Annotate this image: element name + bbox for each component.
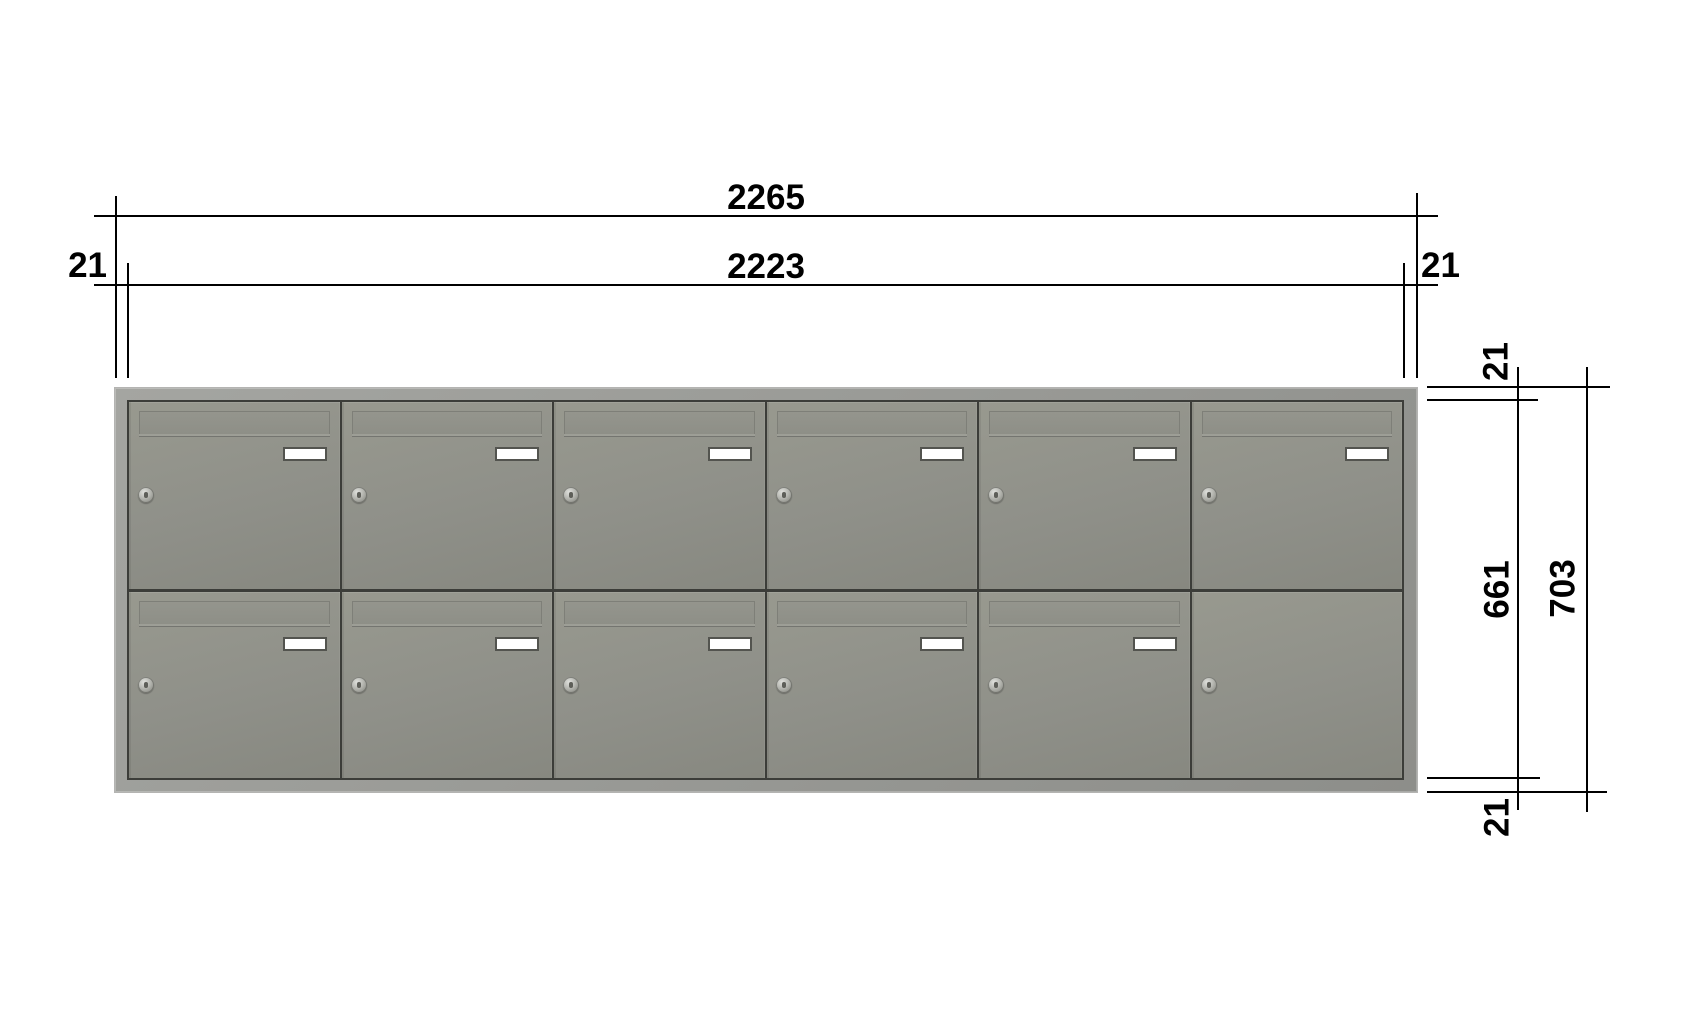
mailbox-door-3 bbox=[554, 402, 765, 589]
mailbox-door-11 bbox=[979, 592, 1190, 779]
keyhole-dot bbox=[1207, 682, 1211, 688]
letter-flap bbox=[777, 411, 968, 434]
letter-flap bbox=[1202, 411, 1393, 434]
dim-label-inner-width: 2223 bbox=[646, 249, 886, 284]
mailbox-door-8 bbox=[342, 592, 553, 779]
letter-flap bbox=[989, 601, 1180, 624]
name-plate bbox=[283, 637, 327, 651]
name-plate bbox=[283, 447, 327, 461]
lock-cylinder bbox=[988, 677, 1004, 693]
keyhole-dot bbox=[994, 682, 998, 688]
letterbox-cabinet-frame bbox=[115, 388, 1417, 792]
letter-flap bbox=[352, 411, 543, 434]
dim-label-left-frame: 21 bbox=[27, 248, 107, 283]
dim-label-right-frame: 21 bbox=[1421, 248, 1501, 283]
lock-cylinder bbox=[1201, 487, 1217, 503]
name-plate bbox=[708, 637, 752, 651]
lock-cylinder bbox=[351, 677, 367, 693]
mailbox-door-12 bbox=[1192, 592, 1403, 779]
mailbox-door-7 bbox=[129, 592, 340, 779]
dim-label-inner-height: 661 bbox=[1480, 530, 1515, 650]
letter-flap bbox=[564, 601, 755, 624]
extension-line-right-outer bbox=[1416, 193, 1418, 378]
letter-flap bbox=[352, 601, 543, 624]
mailbox-door-10 bbox=[767, 592, 978, 779]
keyhole-dot bbox=[144, 492, 148, 498]
keyhole-dot bbox=[1207, 492, 1211, 498]
dim-label-overall-height: 703 bbox=[1546, 529, 1581, 649]
dim-label-overall-width: 2265 bbox=[646, 180, 886, 215]
letter-flap bbox=[139, 601, 330, 624]
mailbox-door-2 bbox=[342, 402, 553, 589]
name-plate bbox=[920, 637, 964, 651]
dimension-drawing-canvas: 2265 2223 21 21 21 661 703 21 bbox=[0, 0, 1694, 1017]
dim-label-top-frame: 21 bbox=[1479, 302, 1514, 422]
mailbox-door-9 bbox=[554, 592, 765, 779]
keyhole-dot bbox=[994, 492, 998, 498]
mailbox-door-5 bbox=[979, 402, 1190, 589]
mailbox-door-4 bbox=[767, 402, 978, 589]
extension-line-top-outer bbox=[1427, 386, 1610, 388]
extension-line-left-inner bbox=[127, 263, 129, 378]
lock-cylinder bbox=[1201, 677, 1217, 693]
keyhole-dot bbox=[357, 682, 361, 688]
dim-label-bottom-frame: 21 bbox=[1480, 758, 1515, 878]
lock-cylinder bbox=[988, 487, 1004, 503]
extension-line-right-inner bbox=[1403, 263, 1405, 378]
letter-flap bbox=[989, 411, 1180, 434]
letter-flap bbox=[139, 411, 330, 434]
lock-cylinder bbox=[563, 487, 579, 503]
keyhole-dot bbox=[144, 682, 148, 688]
name-plate bbox=[1133, 447, 1177, 461]
keyhole-dot bbox=[782, 492, 786, 498]
lock-cylinder bbox=[351, 487, 367, 503]
name-plate bbox=[495, 447, 539, 461]
keyhole-dot bbox=[782, 682, 786, 688]
lock-cylinder bbox=[563, 677, 579, 693]
dim-line-overall-height bbox=[1586, 367, 1588, 812]
keyhole-dot bbox=[569, 492, 573, 498]
letter-flap bbox=[777, 601, 968, 624]
name-plate bbox=[1133, 637, 1177, 651]
keyhole-dot bbox=[569, 682, 573, 688]
name-plate bbox=[495, 637, 539, 651]
lock-cylinder bbox=[776, 487, 792, 503]
door-grid bbox=[127, 400, 1404, 780]
lock-cylinder bbox=[138, 487, 154, 503]
name-plate bbox=[920, 447, 964, 461]
keyhole-dot bbox=[357, 492, 361, 498]
letter-flap bbox=[564, 411, 755, 434]
name-plate bbox=[708, 447, 752, 461]
lock-cylinder bbox=[138, 677, 154, 693]
mailbox-door-1 bbox=[129, 402, 340, 589]
lock-cylinder bbox=[776, 677, 792, 693]
dim-line-inner-height bbox=[1517, 367, 1519, 810]
extension-line-bottom-outer bbox=[1427, 791, 1607, 793]
extension-line-left-outer bbox=[115, 196, 117, 378]
name-plate bbox=[1345, 447, 1389, 461]
mailbox-door-6 bbox=[1192, 402, 1403, 589]
